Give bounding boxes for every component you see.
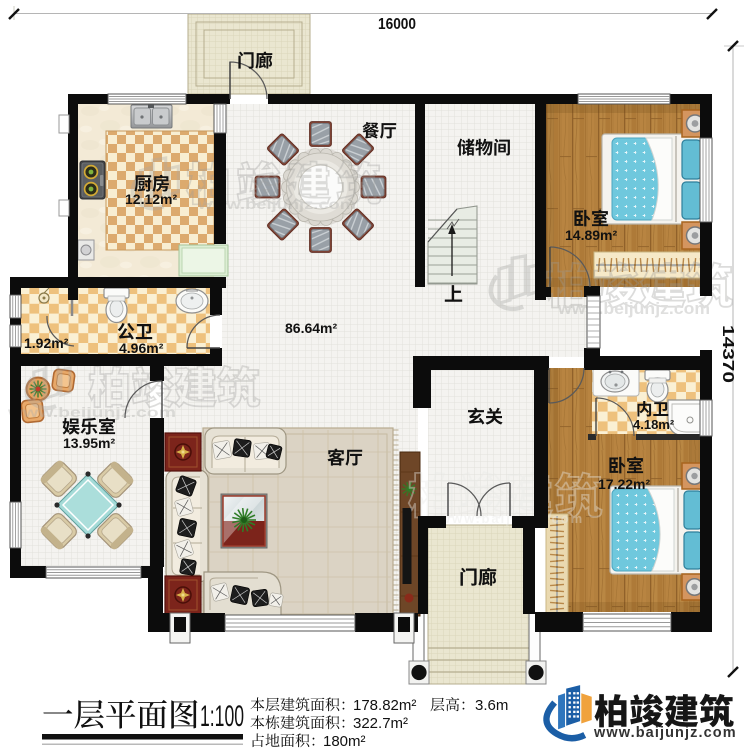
svg-text:www.baijunjz.com: www.baijunjz.com bbox=[593, 725, 737, 741]
svg-text:14370: 14370 bbox=[719, 325, 736, 383]
svg-text:1.92m²: 1.92m² bbox=[24, 335, 69, 351]
svg-text:322.7m²: 322.7m² bbox=[353, 715, 408, 732]
svg-text:www.beijunjz.com: www.beijunjz.com bbox=[7, 404, 176, 420]
svg-text:86.64m²: 86.64m² bbox=[285, 320, 337, 336]
svg-text:12.12m²: 12.12m² bbox=[125, 191, 177, 207]
svg-text:www.baijunjz.com: www.baijunjz.com bbox=[439, 511, 584, 526]
svg-text:17.22m²: 17.22m² bbox=[598, 476, 650, 492]
svg-text:180m²: 180m² bbox=[323, 733, 366, 750]
svg-text:3.6m: 3.6m bbox=[475, 697, 508, 714]
svg-text:178.82m²: 178.82m² bbox=[353, 697, 416, 714]
svg-text:4.96m²: 4.96m² bbox=[119, 340, 164, 356]
svg-text:14.89m²: 14.89m² bbox=[565, 227, 617, 243]
svg-text:www.beijunjz.com: www.beijunjz.com bbox=[557, 299, 710, 318]
svg-text:16000: 16000 bbox=[378, 16, 416, 33]
svg-text:13.95m²: 13.95m² bbox=[63, 435, 115, 451]
svg-text:4.18m²: 4.18m² bbox=[633, 417, 675, 432]
svg-text:1:100: 1:100 bbox=[200, 700, 244, 733]
